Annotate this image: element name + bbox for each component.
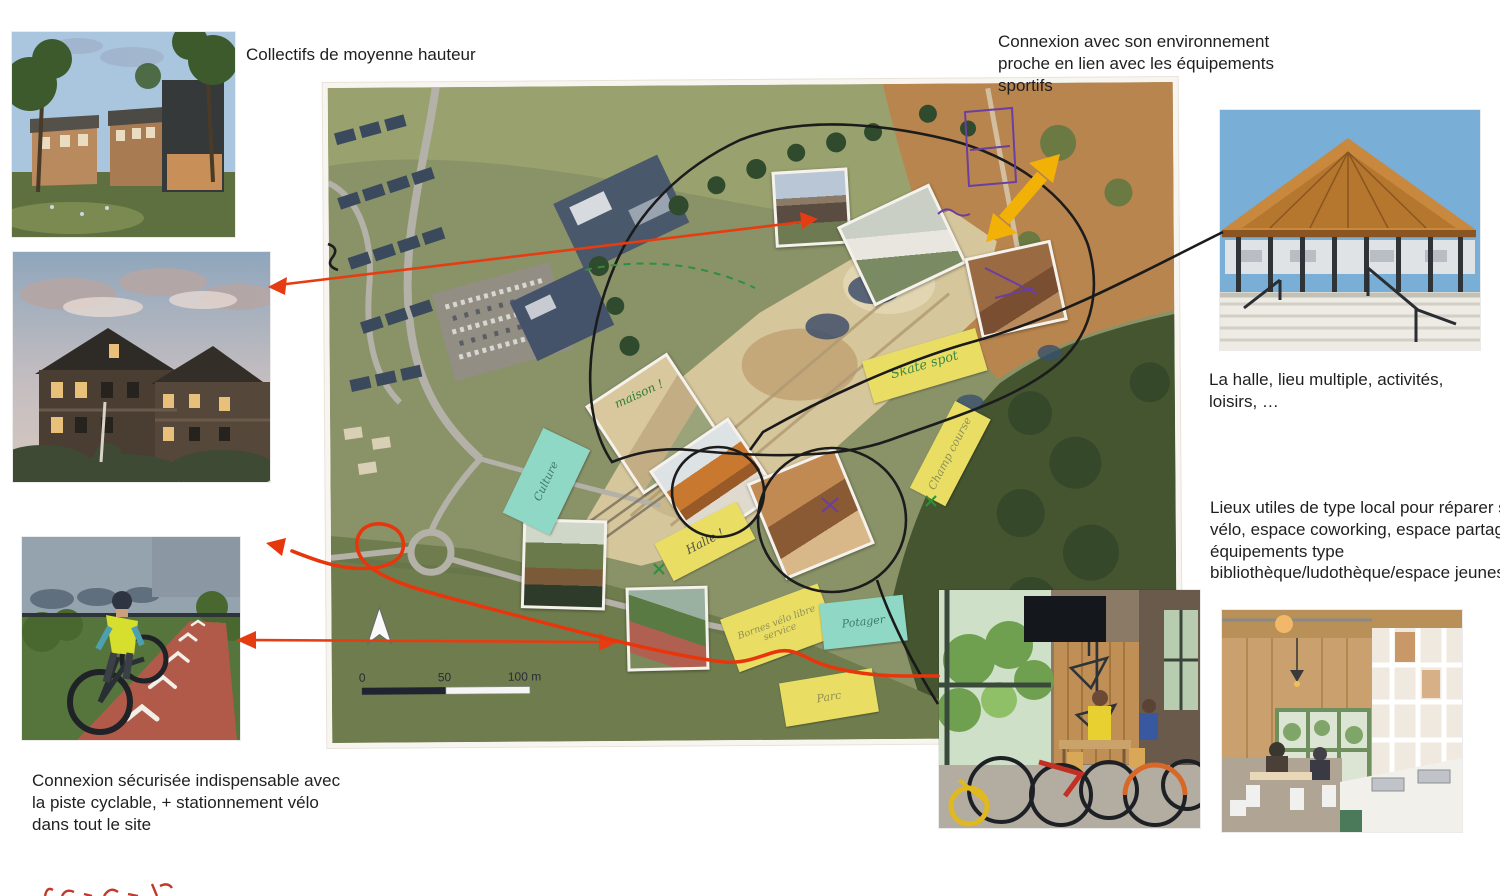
sticky-note-label: Culture: [532, 460, 561, 503]
scale-label-100: 100 m: [508, 669, 541, 683]
slide-canvas: Collectifs de moyenne hauteur Connexion …: [0, 0, 1500, 896]
cafe-illustration: [1222, 610, 1462, 832]
sticky-note-label: Skate spot: [889, 349, 960, 382]
caption-connexion-environnement: Connexion avec son environnement proche …: [998, 31, 1320, 96]
sticky-note-potager: Potager: [819, 595, 908, 650]
bike-workshop-illustration: [939, 590, 1200, 828]
sticky-note-label: Halle !: [684, 526, 726, 556]
cyclist-illustration: [22, 537, 240, 740]
wood-housing-illustration: [13, 252, 270, 482]
pinned-photo-building-trees: [521, 518, 607, 610]
collective-housing-illustration: [12, 32, 235, 237]
sticky-note-label: Parc: [816, 690, 842, 705]
sticky-note-label: Potager: [841, 614, 885, 630]
halle-illustration: [1220, 110, 1480, 350]
pinned-photo-housing-1: [771, 167, 851, 247]
pinned-photo-cyclist: [625, 586, 709, 672]
red-route-arrowhead: [266, 538, 286, 556]
red-handwriting-fragment: [45, 884, 172, 896]
scale-label-0: 0: [359, 671, 366, 685]
photo-cyclist: [22, 537, 240, 740]
photo-bike-workshop: [939, 590, 1200, 828]
photo-collective-housing: [12, 32, 235, 237]
caption-collectifs: Collectifs de moyenne hauteur: [246, 44, 476, 66]
photo-cafe: [1222, 610, 1462, 832]
caption-halle: La halle, lieu multiple, activités, lois…: [1209, 369, 1481, 413]
scale-label-50: 50: [438, 670, 452, 684]
caption-lieux-utiles: Lieux utiles de type local pour réparer …: [1210, 497, 1500, 584]
photo-halle: [1220, 110, 1480, 350]
caption-connexion-cyclable: Connexion sécurisée indispensable avec l…: [32, 770, 342, 835]
photo-wood-housing: [13, 252, 270, 482]
